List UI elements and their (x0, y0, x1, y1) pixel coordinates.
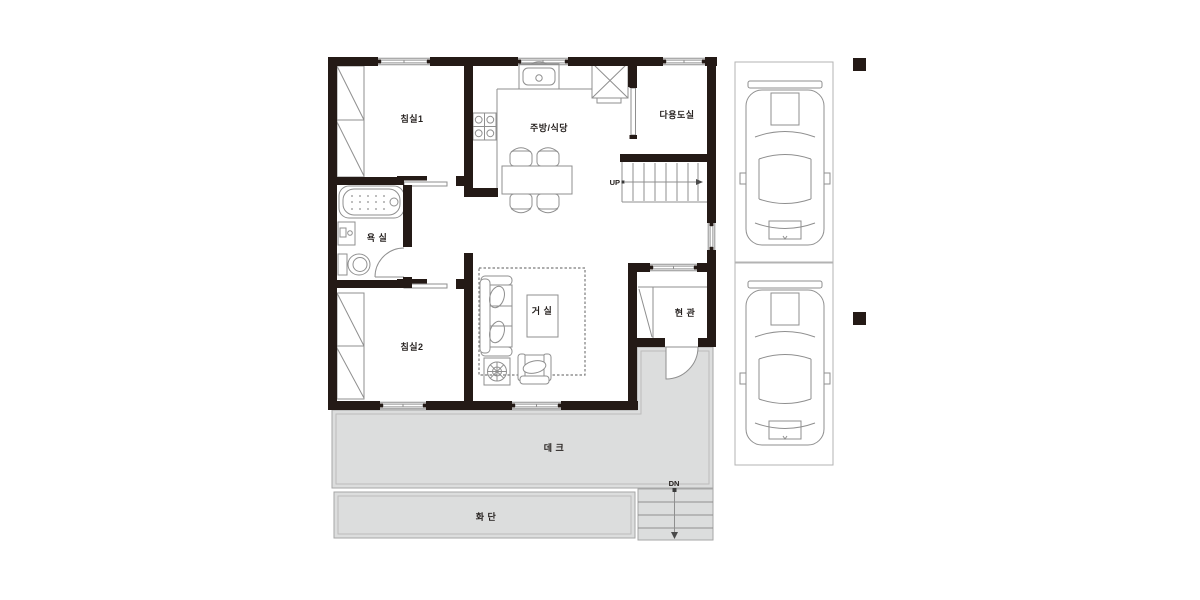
sofa (480, 276, 512, 356)
kitchen-sink (519, 62, 559, 89)
stove-cooktop (473, 113, 496, 140)
dining-set (502, 148, 572, 213)
living-window (512, 402, 561, 409)
kitchen-dining-label: 주방/식당 (530, 122, 568, 133)
bedroom2-closet (337, 293, 364, 399)
column-marker-bottom (853, 312, 866, 325)
deck-label: 데 크 (544, 442, 565, 453)
flower-bed-label: 화 단 (476, 511, 497, 522)
utility-sliding-door (630, 84, 638, 139)
refrigerator-space-x-box (592, 63, 628, 103)
bedroom1-sliding-door (397, 176, 447, 186)
exterior-steps-down (638, 488, 713, 540)
car-top-view-1 (740, 81, 830, 245)
entrance-shoe-closet (638, 287, 707, 338)
car-top-view-2 (740, 281, 830, 445)
column-marker-top (853, 58, 866, 71)
stairs-down-label: DN (669, 479, 680, 488)
stairs-up (622, 162, 708, 202)
armchair (518, 354, 551, 384)
utility-window (663, 58, 705, 65)
bedroom1-closet (337, 66, 364, 177)
bathtub (339, 186, 404, 218)
bathtub-jets (351, 195, 385, 210)
bedroom2-window (380, 402, 426, 409)
washbasin (338, 222, 355, 245)
hall-side-window (708, 223, 715, 250)
potted-plant (484, 358, 510, 385)
parking-area (735, 62, 833, 465)
utility-room-label: 다용도실 (659, 109, 694, 120)
living-room-label: 거 실 (532, 305, 553, 316)
living-table (527, 295, 558, 337)
bedroom1-window (378, 58, 430, 65)
bedroom1-label: 침실1 (400, 113, 423, 124)
toilet (338, 254, 370, 275)
entrance-label: 현 관 (675, 307, 696, 318)
bathroom-label: 욕 실 (367, 232, 388, 243)
entrance-window (650, 264, 697, 271)
floor-plan-canvas: 침실1 주방/식당 다용도실 욕 실 침실2 거 실 현 관 데 크 화 단 U… (0, 0, 1200, 600)
parking-stall-1 (735, 62, 833, 262)
bedroom2-label: 침실2 (400, 341, 423, 352)
bathroom-door (375, 248, 404, 277)
floor-plan-drawing: 침실1 주방/식당 다용도실 욕 실 침실2 거 실 현 관 데 크 화 단 U… (0, 0, 1200, 600)
stairs-up-label: UP (610, 178, 620, 187)
